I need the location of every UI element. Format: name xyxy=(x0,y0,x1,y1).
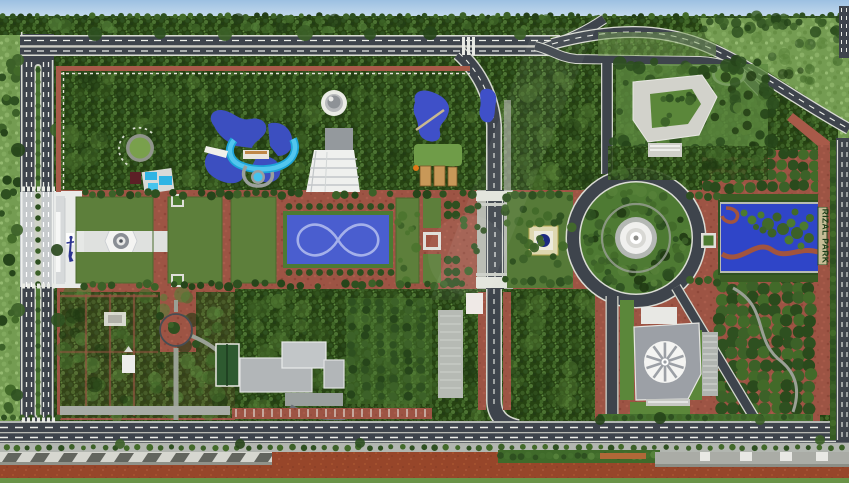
svg-text:RIZAL PARK: RIZAL PARK xyxy=(821,209,831,264)
